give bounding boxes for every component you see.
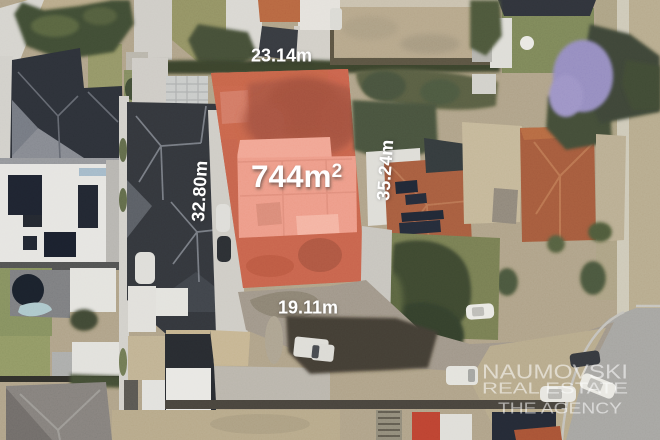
svg-text:REAL ESTATE: REAL ESTATE — [482, 381, 628, 398]
svg-text:THE AGENCY: THE AGENCY — [498, 401, 622, 418]
